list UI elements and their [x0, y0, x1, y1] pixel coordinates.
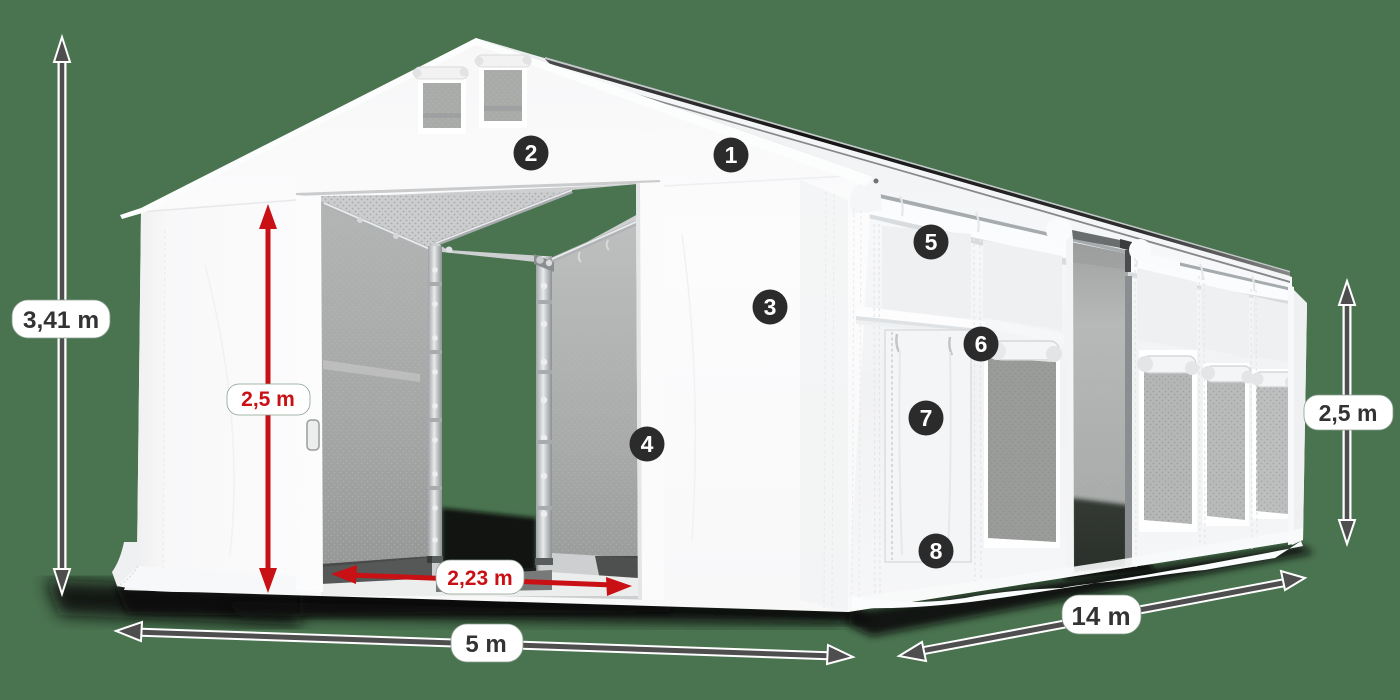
svg-text:5: 5 [925, 229, 938, 255]
svg-text:3,41 m: 3,41 m [23, 307, 99, 334]
svg-text:1: 1 [725, 142, 738, 168]
svg-text:6: 6 [975, 331, 988, 357]
svg-text:3: 3 [764, 294, 777, 320]
svg-text:4: 4 [641, 431, 654, 457]
svg-text:2,23 m: 2,23 m [447, 567, 512, 590]
svg-text:8: 8 [930, 538, 943, 564]
svg-text:2: 2 [525, 140, 538, 166]
svg-text:14 m: 14 m [1071, 601, 1130, 631]
svg-text:2,5 m: 2,5 m [241, 388, 295, 411]
svg-text:2,5 m: 2,5 m [1319, 400, 1378, 426]
svg-text:5 m: 5 m [465, 631, 506, 658]
svg-text:7: 7 [920, 405, 933, 431]
